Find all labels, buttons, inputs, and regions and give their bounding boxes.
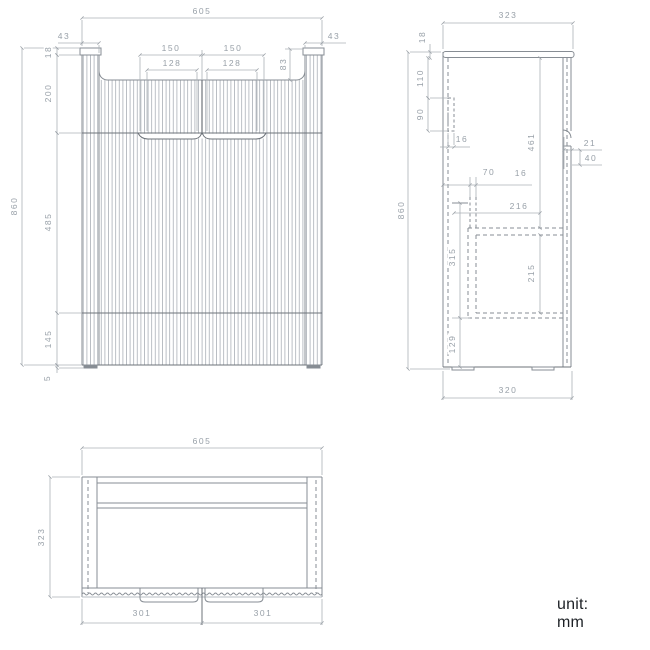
dim-side-base-depth: 320 [498, 386, 519, 395]
side-right-foot [532, 367, 554, 370]
side-view-dimensions [408, 23, 602, 400]
technical-drawing-page: 605 43 43 150 150 128 128 83 18 200 485 … [0, 0, 650, 650]
dim-front-recess-height: 83 [279, 57, 288, 71]
dim-side-drawer-inner: 215 [527, 263, 536, 284]
side-view-drawing [443, 52, 574, 371]
dim-front-top-section: 200 [44, 83, 53, 104]
side-wall-bracket [448, 98, 454, 131]
dim-top-overall-width: 605 [192, 437, 213, 446]
front-right-column-fluting [305, 55, 322, 365]
dim-side-front-height: 461 [527, 132, 536, 153]
dim-side-handle-height: 40 [584, 154, 598, 163]
dim-front-handle-left: 150 [161, 44, 182, 53]
dim-front-overall-width: 605 [192, 7, 213, 16]
top-view-dimensions [50, 448, 322, 625]
front-left-foot [84, 365, 97, 368]
front-view-drawing [80, 48, 324, 368]
dim-front-handle-left-inner: 128 [162, 59, 183, 68]
drawing-canvas [0, 0, 650, 650]
dim-side-inner-depth: 216 [509, 202, 530, 211]
dim-side-runner-thickness: 16 [514, 169, 528, 178]
dim-side-bracket-offset: 110 [416, 68, 425, 88]
dim-side-bottom-zone: 129 [448, 334, 457, 355]
side-countertop [443, 52, 574, 58]
side-left-foot [452, 367, 474, 370]
dim-side-overall-height: 860 [397, 200, 406, 221]
front-right-cap [303, 48, 324, 55]
dim-front-left-panel: 43 [57, 32, 71, 41]
dim-top-overall-depth: 323 [37, 527, 46, 548]
dim-front-middle-section: 485 [44, 212, 53, 233]
dim-side-drawer-zone: 315 [448, 247, 457, 268]
front-right-foot [307, 365, 320, 368]
unit-note: unit: mm [557, 596, 619, 632]
dim-front-right-panel: 43 [327, 32, 341, 41]
dim-front-overall-height: 860 [10, 196, 19, 217]
dim-side-top-thickness: 18 [418, 30, 427, 44]
front-left-column-fluting [83, 55, 100, 365]
dim-side-handle-depth: 21 [583, 139, 597, 148]
top-view-drawing [82, 477, 322, 625]
dim-front-handle-right: 150 [223, 44, 244, 53]
dim-side-bracket-thickness: 16 [455, 135, 469, 144]
dim-side-bracket-height: 90 [416, 107, 425, 121]
side-drawer-box [468, 228, 563, 318]
dim-side-overall-depth: 323 [498, 11, 519, 20]
dim-front-handle-right-inner: 128 [222, 59, 243, 68]
dim-front-bottom-section: 145 [44, 329, 53, 350]
front-left-cap [80, 48, 101, 55]
dim-side-runner-offset: 70 [482, 168, 496, 177]
dim-top-left-door: 301 [132, 609, 153, 618]
dim-top-right-door: 301 [253, 609, 274, 618]
dim-front-cap: 18 [44, 45, 53, 59]
dim-front-feet: 5 [43, 374, 52, 382]
